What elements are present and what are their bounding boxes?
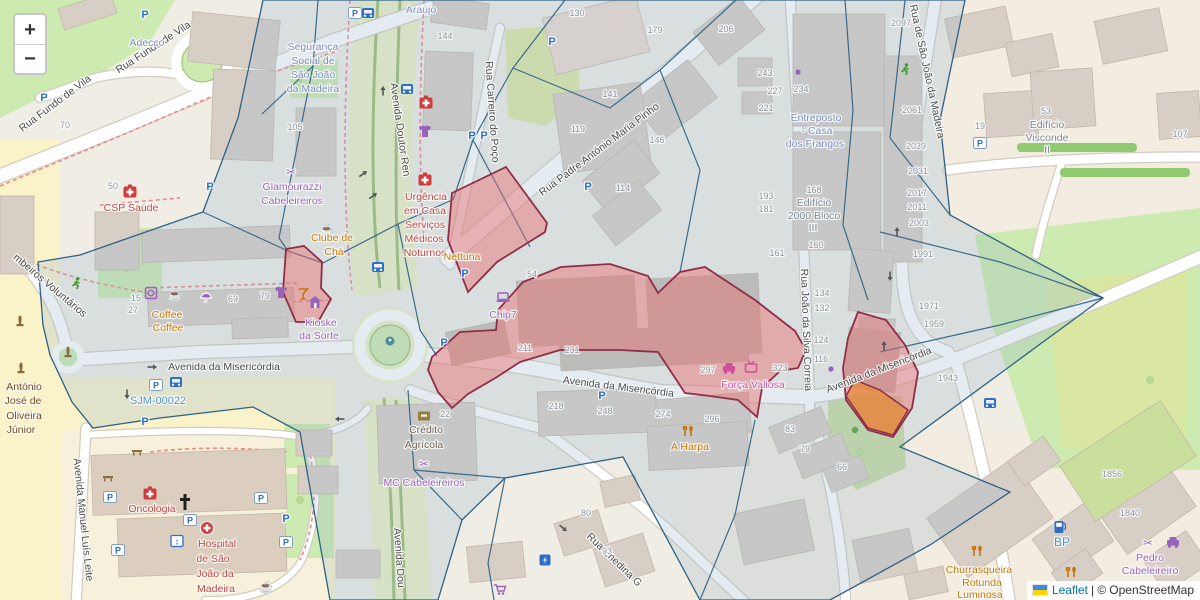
housenumber-label: 1943 — [938, 373, 958, 383]
housenumber-label: 2097 — [891, 18, 911, 28]
housenumber-label: 168 — [806, 185, 821, 195]
parking-lot-icon: P — [255, 493, 268, 504]
poi-label: Coffee — [153, 322, 184, 334]
poi-label: António — [6, 381, 42, 393]
poi-label: Urgência — [405, 191, 447, 203]
housenumber-label: 50 — [108, 181, 118, 191]
poi-label: em Casa — [404, 205, 446, 217]
parking-lot-icon: P — [974, 138, 987, 149]
housenumber-label: 27 — [128, 305, 138, 315]
poi-label: III — [809, 222, 818, 234]
housenumber-label: 146 — [649, 135, 664, 145]
svg-text:P: P — [115, 546, 121, 556]
housenumber-label: 70 — [60, 120, 70, 130]
poi-label: Noturnos — [404, 247, 447, 259]
parking-lot-icon: P — [349, 8, 362, 19]
bus-stop-icon — [362, 8, 374, 18]
poi-label: Serviços — [405, 219, 445, 231]
poi-label: MC Cabeleireiros — [383, 477, 464, 489]
charging-station-icon — [540, 555, 551, 566]
poi-label: 2000 Bloco — [788, 210, 841, 222]
parking-icon: P — [282, 513, 289, 525]
poi-label: Chip7 — [489, 309, 517, 321]
poi-label: Adecco — [129, 37, 164, 49]
housenumber-label: 160 — [808, 240, 823, 250]
housenumber-label: 2039 — [906, 141, 926, 151]
umbrella-icon: ☂ — [201, 291, 212, 305]
svg-text:P: P — [141, 9, 148, 21]
housenumber-label: 297 — [700, 365, 715, 375]
parking-icon: P — [206, 181, 213, 193]
cafe-icon: ☕ — [168, 287, 183, 302]
housenumber-label: 15 — [131, 293, 141, 303]
housenumber-label: 1856 — [1102, 469, 1122, 479]
housenumber-label: 274 — [655, 409, 670, 419]
poi-label: Nettuna — [444, 251, 481, 263]
housenumber-label: 234 — [793, 84, 808, 94]
svg-text:P: P — [352, 9, 358, 19]
poi-label: II — [1044, 144, 1050, 156]
housenumber-label: 124 — [813, 335, 828, 345]
housenumber-label: 107 — [1172, 129, 1187, 139]
poi-label: Edifício — [797, 197, 832, 209]
ukraine-flag-icon — [1033, 585, 1047, 595]
poi-label: Chá — [324, 246, 343, 258]
svg-text:P: P — [598, 390, 605, 402]
housenumber-label: 161 — [769, 248, 784, 258]
poi-label: - Casa — [802, 125, 833, 137]
building — [466, 541, 525, 583]
tree-dot-icon — [852, 427, 858, 433]
housenumber-label: 248 — [597, 406, 612, 416]
housenumber-label: 1991 — [913, 249, 933, 259]
leaflet-link[interactable]: Leaflet — [1052, 583, 1088, 597]
housenumber-label: 144 — [437, 31, 452, 41]
cafe-icon: ☕ — [259, 579, 274, 594]
parking-icon: P — [468, 130, 475, 142]
housenumber-label: 83 — [785, 424, 795, 434]
zoom-out-button[interactable]: − — [15, 44, 45, 73]
housenumber-label: 79 — [800, 444, 810, 454]
svg-text:✂: ✂ — [1143, 536, 1153, 550]
bus-stop-icon — [372, 262, 384, 272]
housenumber-label: 105 — [287, 122, 302, 132]
map-attribution: Leaflet | © OpenStreetMap — [1027, 581, 1200, 600]
housenumber-label: 116 — [814, 354, 828, 364]
housenumber-label: 227 — [767, 86, 782, 96]
housenumber-label: 2031 — [908, 166, 928, 176]
housenumber-label: 66 — [837, 462, 847, 472]
poi-label: São João — [291, 69, 336, 81]
svg-text:✂: ✂ — [286, 165, 296, 179]
parking-icon: P — [584, 181, 591, 193]
shop-dot-icon — [795, 69, 800, 74]
housenumber-label: 19 — [975, 121, 985, 131]
housenumber-label: 231 — [564, 345, 579, 355]
housenumber-label: 130 — [569, 8, 584, 18]
parking-icon: P — [548, 36, 555, 48]
poi-label: João da — [196, 568, 234, 580]
poi-label: José de — [5, 395, 42, 407]
housenumber-label: 132 — [814, 303, 829, 313]
poi-label: Kioske — [305, 317, 337, 329]
housenumber-label: 181 — [758, 204, 773, 214]
hospital-icon — [201, 522, 214, 535]
parking-icon: P — [141, 416, 148, 428]
svg-text:P: P — [440, 337, 447, 349]
poi-label: A Harpa — [671, 441, 709, 453]
poi-label: dos Frangos — [786, 138, 844, 150]
svg-text:↕: ↕ — [175, 537, 180, 547]
housenumber-label: 54 — [527, 269, 537, 279]
svg-text:P: P — [468, 130, 475, 142]
parking-lot-icon: P — [150, 380, 163, 391]
poi-label: Visconde — [1025, 132, 1068, 144]
elevator-icon: ↕ — [171, 536, 183, 547]
housenumber-label: 296 — [704, 414, 719, 424]
poi-label: BP — [1054, 535, 1070, 549]
housenumber-label: 2011 — [907, 202, 926, 212]
housenumber-label: 79 — [260, 291, 270, 301]
parking-icon: P — [461, 268, 468, 280]
housenumber-label: 141 — [602, 89, 617, 99]
attribution-separator: | © — [1091, 583, 1106, 597]
svg-text:P: P — [141, 416, 148, 428]
svg-text:☂: ☂ — [201, 291, 212, 305]
housenumber-label: 1840 — [1120, 508, 1140, 518]
housenumber-label: 53 — [1041, 106, 1051, 116]
housenumber-label: 323 — [772, 363, 787, 373]
hairdresser-icon: ✂ — [286, 165, 296, 179]
svg-text:☕: ☕ — [168, 287, 183, 302]
bank-icon — [418, 412, 430, 421]
housenumber-label: 2003 — [909, 218, 929, 228]
poi-label: Hospital — [198, 538, 236, 550]
housenumber-label: 114 — [616, 183, 630, 193]
housenumber-label: 211 — [518, 343, 532, 353]
svg-text:P: P — [584, 181, 591, 193]
housenumber-label: 134 — [814, 288, 829, 298]
housenumber-label: 179 — [647, 25, 662, 35]
osm-link[interactable]: OpenStreetMap — [1109, 583, 1194, 597]
zoom-in-button[interactable]: + — [15, 15, 45, 44]
bus-stop-icon — [984, 398, 996, 408]
poi-label: Clube de — [311, 232, 353, 244]
shop-dot-icon — [828, 366, 833, 371]
poi-label: Médicos — [404, 233, 443, 245]
housenumber-label: 218 — [548, 401, 563, 411]
poi-label: Crédito — [409, 424, 443, 436]
poi-label: Oliveira — [6, 410, 42, 422]
poi-label: Rotunda — [962, 577, 1002, 589]
map-canvas[interactable]: PPPPPPPPPPPPPPPPPPPP☕☕☕✂✂✂☂↕ Rua Fundo d… — [0, 0, 1200, 600]
svg-text:P: P — [548, 36, 555, 48]
poi-label: Madeira — [197, 583, 235, 595]
parking-icon: P — [440, 337, 447, 349]
parking-lot-icon: P — [104, 492, 117, 503]
svg-text:P: P — [206, 181, 213, 193]
poi-label: da Sorte — [299, 330, 339, 342]
hairdresser-icon: ✂ — [419, 457, 429, 471]
poi-label: Entreposto — [791, 112, 842, 124]
bus-stop-icon — [401, 84, 413, 94]
svg-text:P: P — [283, 538, 289, 548]
svg-text:P: P — [461, 268, 468, 280]
poi-label: Segurança — [288, 41, 339, 53]
poi-label: Júnior — [7, 424, 36, 436]
bus-stop-icon — [170, 377, 182, 387]
parking-icon: P — [598, 390, 605, 402]
street-label: SJM-00022 — [130, 395, 186, 407]
poi-label: Araújo — [406, 4, 437, 16]
parking-icon: P — [141, 9, 148, 21]
building — [91, 449, 287, 516]
svg-text:P: P — [282, 513, 289, 525]
housenumber-label: 243 — [757, 68, 772, 78]
parking-lot-icon: P — [112, 545, 125, 556]
svg-text:P: P — [153, 381, 159, 391]
parking-lot-icon: P — [184, 515, 197, 526]
svg-text:✂: ✂ — [419, 457, 429, 471]
svg-text:☕: ☕ — [259, 579, 274, 594]
poi-label: Cabeleireiros — [261, 195, 323, 207]
svg-text:P: P — [480, 130, 487, 142]
housenumber-label: 1971 — [919, 301, 939, 311]
housenumber-label: 119 — [571, 124, 585, 134]
poi-label: Edifício — [1030, 119, 1065, 131]
poi-label: Cabeleireiro — [1122, 565, 1179, 577]
poi-label: Oncologia — [128, 503, 175, 515]
svg-text:P: P — [977, 139, 983, 149]
svg-text:P: P — [107, 493, 113, 503]
parking-icon: P — [480, 130, 487, 142]
housenumber-label: 80 — [581, 508, 591, 518]
housenumber-label: 69 — [228, 294, 238, 304]
housenumber-label: 221 — [758, 103, 773, 113]
housenumber-label: 22 — [440, 409, 450, 419]
parking-lot-icon: P — [280, 537, 293, 548]
poi-label: CSP Saúde — [104, 202, 159, 214]
poi-label: Social de — [291, 55, 334, 67]
housenumber-label: 2061 — [902, 105, 922, 115]
poi-label: Coffee — [152, 309, 183, 321]
housenumber-label: 1959 — [924, 319, 944, 329]
street-label: Avenida da Misericórdia — [168, 361, 280, 373]
svg-text:P: P — [187, 516, 193, 526]
poi-label: de São — [196, 553, 229, 565]
svg-text:P: P — [258, 494, 264, 504]
poi-label: Glamourazzi — [263, 181, 322, 193]
poi-label: Agrícola — [405, 439, 444, 451]
poi-label: Churrasqueira — [946, 564, 1013, 576]
housenumber-label: 206 — [718, 24, 733, 34]
housenumber-label: 93 — [602, 546, 612, 556]
fountain-icon — [386, 337, 395, 346]
housenumber-label: 193 — [758, 191, 773, 201]
zoom-control: + − — [13, 13, 47, 75]
poi-label: Pedro — [1136, 552, 1164, 564]
poi-label: da Madeira — [287, 83, 340, 95]
housenumber-label: 2017 — [907, 188, 927, 198]
hairdresser-icon: ✂ — [1143, 536, 1153, 550]
poi-label: Força Valiosa — [721, 379, 785, 391]
poi-label: Luminosa — [957, 589, 1003, 600]
